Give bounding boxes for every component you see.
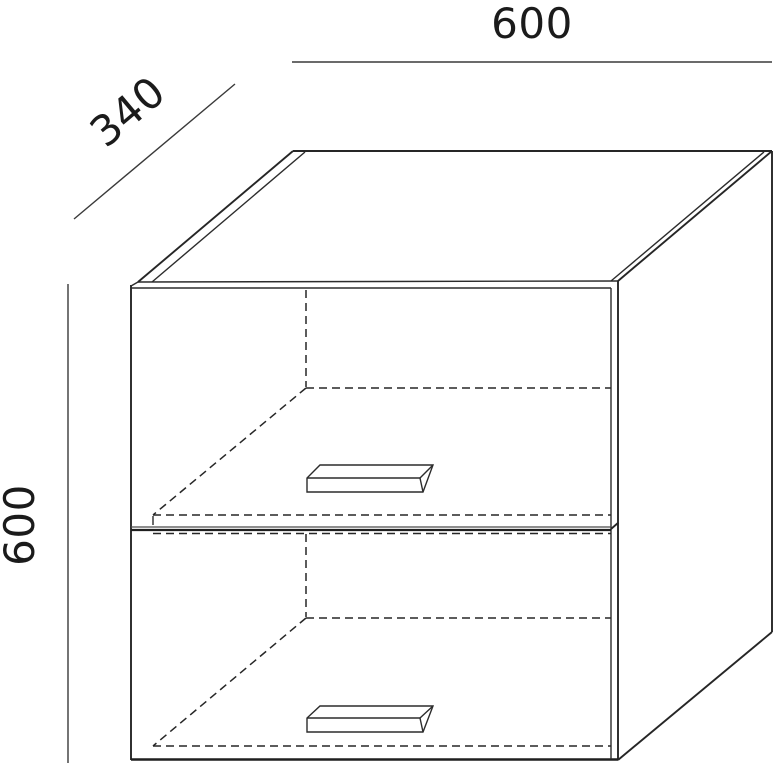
top-panel-front-edge: [138, 281, 618, 282]
technical-drawing-canvas: 600 340 600: [0, 0, 774, 768]
lower-handle-body: [307, 706, 433, 732]
top-left-inner-edge: [152, 152, 305, 282]
dimension-lines: [68, 62, 772, 763]
width-dimension-label: 600: [491, 0, 573, 48]
upper-floor-left-edge-hidden: [153, 388, 306, 515]
top-right-inner-edge: [611, 152, 764, 281]
lower-door-handle: [307, 706, 433, 732]
top-left-depth-edge: [138, 151, 293, 282]
upper-door-handle: [307, 465, 433, 492]
top-left-bevel: [131, 282, 138, 286]
height-dimension-label: 600: [0, 484, 44, 566]
lower-floor-left-edge-hidden: [153, 618, 306, 746]
cabinet-dimension-drawing: 600 340 600: [0, 0, 774, 768]
top-right-depth-edge: [618, 151, 772, 281]
cabinet-carcass-outline: [131, 151, 772, 760]
depth-dimension-label: 340: [81, 67, 175, 157]
dimension-labels: 600 340 600: [0, 0, 573, 566]
cabinet-doors: [131, 288, 619, 759]
right-side-bottom-edge: [618, 632, 772, 760]
